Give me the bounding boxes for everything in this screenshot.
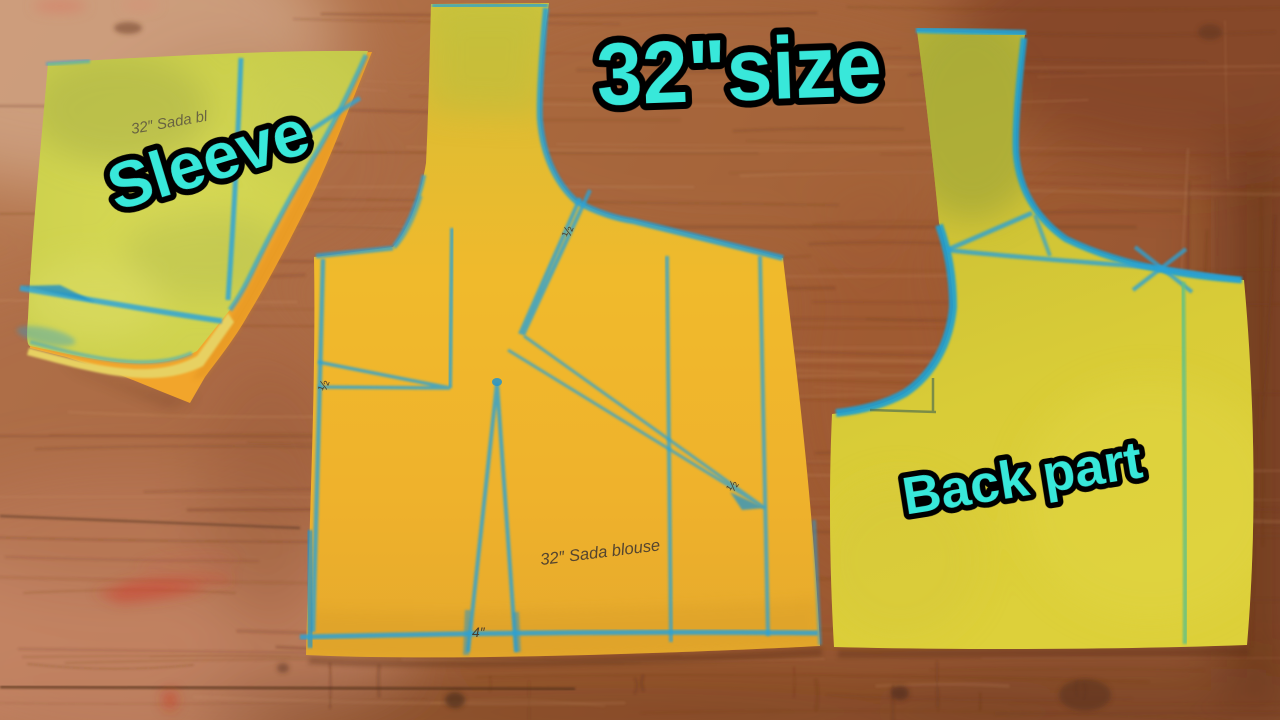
svg-text:32"size: 32"size	[595, 15, 883, 124]
svg-text:4″: 4″	[472, 624, 486, 640]
